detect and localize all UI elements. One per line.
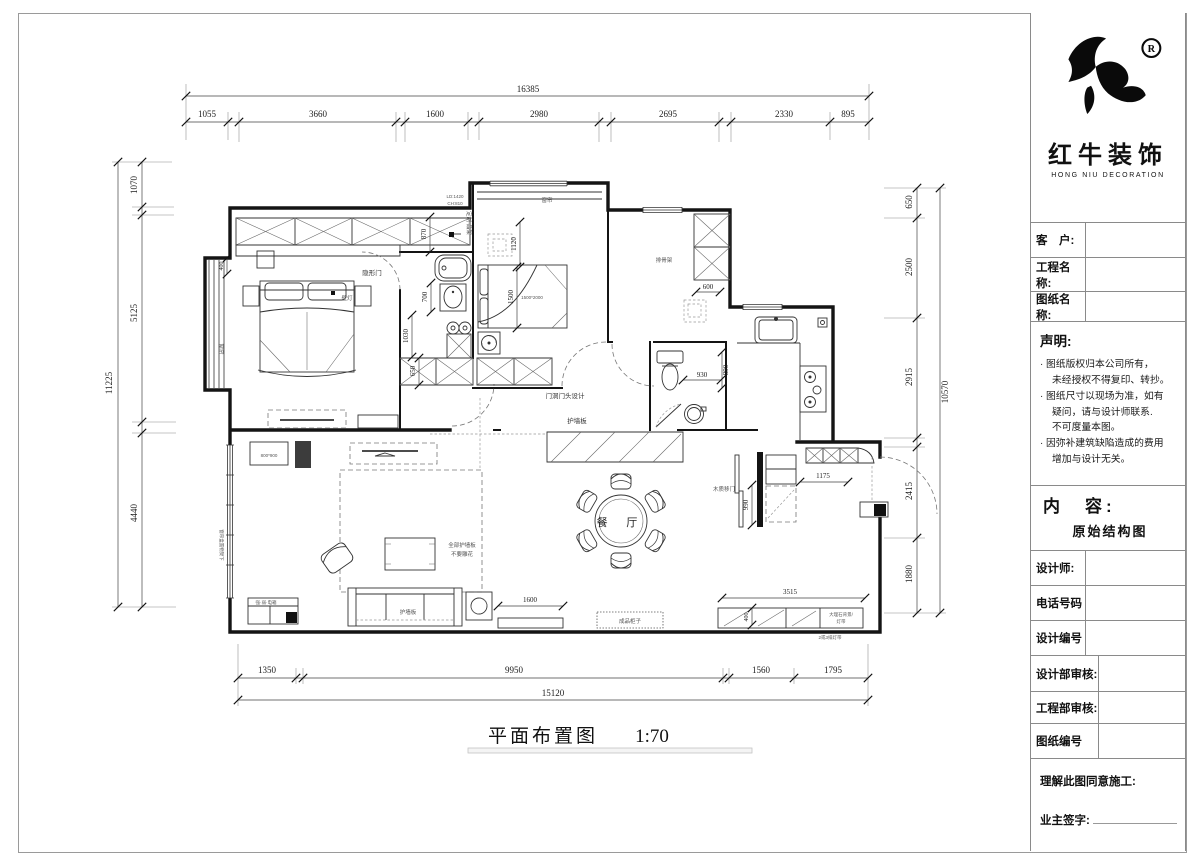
statement-section: 声明: · 图纸版权归本公司所有， 未经授权不得复印、转抄。 · 图纸尺寸以现场… — [1031, 321, 1185, 485]
dim-label: 1795 — [824, 665, 843, 675]
content-value: 原始结构图 — [1043, 521, 1177, 540]
sink — [444, 286, 462, 308]
bench — [498, 618, 563, 628]
owner-sign-line — [1093, 811, 1177, 824]
dim-label: 11225 — [104, 371, 114, 394]
dim-label: 1030 — [402, 329, 410, 344]
ch-note: CH:810 — [447, 201, 463, 206]
sheet-title: 平面布置图 1:70 — [468, 725, 752, 753]
dining-room-label: 餐 厅 — [597, 515, 646, 529]
drawing-no-label: 图纸编号 — [1031, 724, 1099, 758]
drawing-no-row: 图纸编号 — [1031, 723, 1185, 758]
dim-label: 2980 — [530, 109, 549, 119]
dim-label: 1560 — [752, 665, 771, 675]
customer-label: 客 户: — [1031, 223, 1086, 257]
bed-size-label: 1500*2000 — [521, 295, 543, 300]
bathtub — [435, 255, 471, 281]
dim-label: 895 — [841, 109, 855, 119]
owner-sign-row: 业主签字: — [1040, 811, 1177, 828]
lights-note: 2或3排灯带 — [818, 634, 842, 641]
design-no-label: 设计编号 — [1031, 621, 1086, 655]
curtain-label: 窗帘 — [217, 343, 225, 355]
phone-label: 电话号码 — [1031, 586, 1086, 620]
dim-label: 990 — [742, 499, 750, 510]
customer-row: 客 户: — [1031, 222, 1185, 257]
dim-label: 1070 — [129, 176, 139, 195]
master-bedroom — [236, 218, 494, 428]
dim-label: 2500 — [904, 258, 914, 277]
dim-label: 600 — [703, 283, 714, 291]
plan-labels: 隐形门 壁灯 窗帘 窗帘 定制·品架 LD:1420 CH:810 1500*2… — [217, 194, 854, 641]
dim-label: 700 — [421, 291, 429, 302]
dim-label: 1600 — [426, 109, 445, 119]
design-no-row: 设计编号 — [1031, 620, 1185, 655]
eng-review-label: 工程部审核: — [1031, 692, 1099, 723]
statement-line: · 图纸版权归本公司所有， — [1040, 357, 1179, 373]
dim-chain-right: 650 2500 2915 2415 1880 10570 — [884, 184, 950, 617]
coffee-table — [385, 538, 435, 570]
dim-label: 1175 — [816, 472, 830, 480]
design-review-label: 设计部审核: — [1031, 656, 1099, 691]
designer-label: 设计师: — [1031, 551, 1086, 585]
statement-line: · 因弥补建筑缺陷造成的费用 — [1040, 436, 1179, 452]
dim-label: 10570 — [940, 380, 950, 403]
plan-scale: 1:70 — [635, 726, 669, 747]
eng-review-row: 工程部审核: — [1031, 691, 1185, 723]
brand-name-en: HONG NIU DECORATION — [1051, 172, 1165, 179]
plan-title: 平面布置图 — [488, 725, 598, 747]
dim-label: 1350 — [258, 665, 277, 675]
dim-chain-top: 16385 1055 3660 1600 2980 2695 2330 895 — [182, 84, 873, 142]
logo-cell: R 红牛装饰 HONG NIU DECORATION — [1031, 13, 1185, 222]
dim-label: 1055 — [198, 109, 217, 119]
statement-line: 增加与设计无关。 — [1040, 452, 1179, 468]
living-dining — [248, 398, 863, 628]
floor-plan-svg: 16385 1055 3660 1600 2980 2695 2330 895 … — [0, 0, 1030, 864]
phone-row: 电话号码 — [1031, 585, 1185, 620]
dim-label: 3515 — [783, 588, 798, 596]
company-logo: R — [1042, 27, 1174, 137]
master-bathroom — [400, 232, 473, 385]
elec-box-label: 强·弱·电箱 — [256, 599, 277, 606]
dim-label: 5125 — [129, 304, 139, 323]
statement-line: 未经授权不得复印、转抄。 — [1040, 373, 1179, 389]
marble-cabinet — [718, 608, 863, 628]
kitchen — [735, 317, 827, 527]
dim-label: 9950 — [505, 665, 524, 675]
dim-label: 930 — [697, 371, 708, 379]
second-bathroom — [656, 351, 706, 427]
custom-rack-label: 定制·品架 — [465, 211, 473, 235]
finished-cabinet-label: 成品柜子 — [619, 617, 642, 625]
project-row: 工程名称: — [1031, 257, 1185, 291]
toilet — [662, 364, 678, 390]
statement-line: · 图纸尺寸以现场为准，如有 — [1040, 389, 1179, 405]
niche-size-label: 800*900 — [261, 453, 278, 458]
dim-label: 2415 — [904, 482, 914, 501]
armchair — [319, 541, 355, 575]
dim-label: 2695 — [659, 109, 678, 119]
dim-label: 2915 — [904, 368, 914, 387]
dim-label: 3660 — [309, 109, 328, 119]
logo-body — [1096, 61, 1146, 102]
dim-label: 400 — [744, 613, 750, 622]
dim-label: 16385 — [517, 84, 540, 94]
wall-panel-label: 护墙板 — [567, 416, 587, 425]
panel-note2: 不要雕花 — [451, 550, 474, 558]
wood-slide-door-label: 木质移门 — [713, 485, 735, 493]
drawing-name-row: 图纸名称: — [1031, 291, 1185, 321]
dim-label: 4440 — [129, 504, 139, 523]
brand-name: 红牛装饰 — [1048, 135, 1168, 170]
design-review-row: 设计部审核: — [1031, 655, 1185, 691]
slat-frame-label: 排骨架 — [656, 256, 673, 264]
dim-label: 650 — [904, 195, 914, 209]
rug — [340, 470, 482, 592]
wall-panel-label: 护墙板 — [400, 608, 417, 616]
agree-label: 理解此图同意施工: — [1040, 773, 1177, 789]
content-section: 内 容: 原始结构图 — [1031, 485, 1185, 550]
statement-line: 不可度量本图。 — [1040, 420, 1179, 436]
project-label: 工程名称: — [1031, 258, 1086, 291]
dim-label: 1500 — [507, 290, 515, 305]
title-block: R 红牛装饰 HONG NIU DECORATION 客 户: 工程名称: 图纸… — [1030, 13, 1186, 851]
marble-label: 大理石背景/ — [829, 611, 853, 618]
dim-label: 400 — [219, 262, 225, 271]
interior-walls — [400, 183, 763, 527]
ld-note: LD:1420 — [446, 194, 464, 199]
dim-label: 2330 — [775, 109, 794, 119]
dim-label: 15120 — [542, 688, 565, 698]
hidden-door-label: 隐形门 — [362, 268, 382, 277]
content-label: 内 容: — [1043, 492, 1177, 517]
signature-section: 理解此图同意施工: 业主签字: — [1031, 758, 1185, 851]
dim-label: 870 — [420, 228, 428, 239]
drawing-name-label: 图纸名称: — [1031, 292, 1086, 321]
owner-sign-label: 业主签字: — [1040, 815, 1090, 827]
exterior-walls — [205, 183, 880, 632]
dim-chain-left: 11225 1070 5125 4440 — [104, 158, 176, 611]
dim-chain-bottom: 1350 9950 1560 1795 15120 — [234, 644, 872, 706]
drawing-sheet: 16385 1055 3660 1600 2980 2695 2330 895 … — [0, 0, 1200, 864]
curtain-label: 窗帘 — [541, 196, 553, 204]
dim-label: 890 — [722, 364, 730, 375]
registered-letter: R — [1148, 44, 1156, 55]
statement-line: 疑问，请与设计师联系. — [1040, 405, 1179, 421]
statement-title: 声明: — [1040, 330, 1179, 350]
dim-label: 650 — [409, 365, 417, 376]
curtain-box-label: 窗帘盒置物架下 — [218, 529, 225, 561]
designer-row: 设计师: — [1031, 550, 1185, 585]
dim-label: 1880 — [904, 565, 914, 584]
dim-label: 1600 — [523, 596, 538, 604]
small-bedroom — [477, 234, 606, 386]
wall-lamp-label: 壁灯 — [341, 294, 353, 302]
marble-label2: 灯带 — [837, 618, 846, 625]
panel-note1: 全部护墙板 — [448, 541, 476, 549]
door-head-label: 门洞门头设计 — [546, 391, 586, 400]
dim-label: 1120 — [510, 237, 518, 251]
logo-tail — [1084, 86, 1094, 114]
